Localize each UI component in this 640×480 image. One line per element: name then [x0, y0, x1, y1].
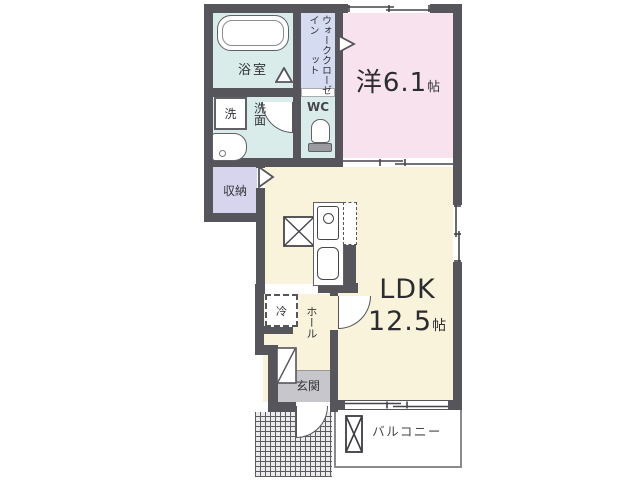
washroom-label: 洗面: [250, 102, 268, 148]
washbasin-drain: [219, 150, 226, 157]
balcony-sliding-window: [345, 401, 448, 409]
wall: [263, 326, 293, 334]
ldk-label: LDK 12.5帖: [355, 274, 460, 338]
western-ldk-sliding-door: [343, 158, 453, 167]
kitchen-prep-counter: [283, 216, 315, 247]
ldk-side-window: [453, 205, 462, 262]
balcony-partition: [345, 415, 363, 453]
bathtub: [217, 15, 289, 51]
wc-label: WC: [302, 98, 334, 115]
washbasin: [212, 133, 247, 161]
entrance-label: 玄関: [286, 377, 330, 393]
stove: [317, 206, 339, 240]
refrigerator-label: 冷: [276, 303, 287, 319]
burner: [323, 213, 334, 224]
kitchen-upper-cabinet: [343, 202, 357, 245]
hall-door-opening: [330, 296, 338, 330]
wall: [213, 88, 301, 97]
kitchen-sink: [317, 247, 339, 280]
closet-door-marker: [337, 34, 357, 54]
wall: [204, 4, 213, 222]
wall: [256, 188, 265, 294]
refrigerator-space: 冷: [265, 294, 298, 327]
toilet-base: [308, 143, 332, 152]
storage-label: 収納: [213, 167, 257, 213]
washing-machine: 洗: [214, 97, 247, 130]
western-room-window: [348, 4, 430, 13]
floor-plan: 洗 冷 浴室 ウォークイン クローゼット 洋6.1帖 洗面: [0, 0, 640, 480]
washing-machine-label: 洗: [224, 105, 236, 122]
toilet-bowl: [311, 119, 330, 143]
walk-in-closet-label: ウォークイン クローゼット: [299, 15, 337, 95]
wall: [255, 284, 264, 354]
washroom-door-marker: [257, 165, 275, 189]
hall-label: ホール: [302, 306, 320, 358]
bathroom-label: 浴室: [213, 58, 293, 78]
balcony-label: バルコニー: [364, 422, 450, 439]
kitchen-partition-wall: [342, 245, 356, 290]
kitchen-counter: [313, 202, 344, 286]
western-room-label: 洋6.1帖: [343, 62, 453, 98]
